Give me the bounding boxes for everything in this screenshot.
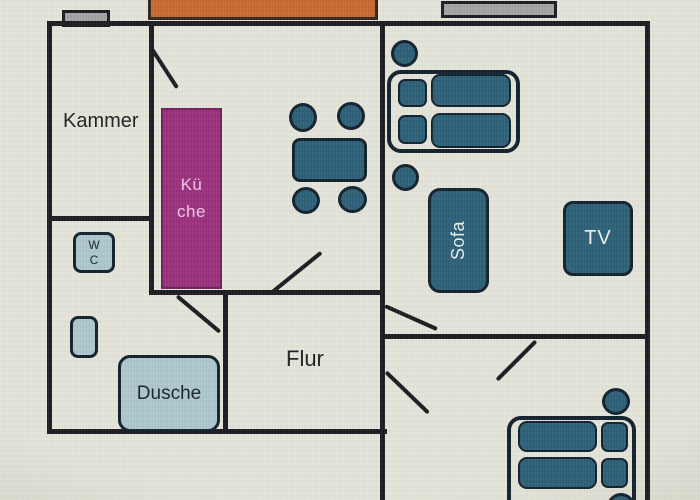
wall-bottom-left <box>47 429 387 434</box>
wall-center-vertical <box>380 21 385 500</box>
dining-table <box>292 138 367 182</box>
bed-pillow <box>398 79 427 107</box>
wall-kitchen-left <box>149 21 154 295</box>
door-swing-bedroom-living <box>496 340 538 382</box>
dining-chair <box>289 103 317 132</box>
dining-chair <box>292 187 320 214</box>
bed-mattress <box>518 457 597 489</box>
bed-bedroom <box>507 416 636 500</box>
floorplan-photo: Kammer Flur Kü che Sofa TV W C Dusche <box>0 0 700 500</box>
door-swing-bathroom <box>176 294 221 333</box>
tv: TV <box>563 201 633 276</box>
sofa-label: Sofa <box>448 221 469 260</box>
nightstand-circle <box>602 388 630 415</box>
shower-label: Dusche <box>137 383 201 405</box>
bed-pillow <box>601 458 628 488</box>
kitchen-counter: Kü che <box>161 108 222 289</box>
wall-living-bedroom-divider <box>380 334 650 339</box>
sofa: Sofa <box>428 188 489 293</box>
wall-bathroom-right <box>223 290 228 434</box>
bed-pillow <box>398 115 427 144</box>
nightstand-circle <box>391 40 418 67</box>
kitchen-label-line1: Kü <box>181 172 203 198</box>
nightstand-circle <box>392 164 419 191</box>
balcony-rect <box>148 0 378 20</box>
bed-mattress <box>518 421 597 452</box>
dining-chair <box>338 186 367 213</box>
door-swing-living-room <box>384 304 438 331</box>
shower: Dusche <box>118 355 220 432</box>
wc-label-line2: C <box>90 253 99 267</box>
tv-label: TV <box>584 227 612 250</box>
bed-mattress <box>431 113 511 148</box>
wc-toilet: W C <box>73 232 115 273</box>
wc-label-line1: W <box>88 238 99 252</box>
wall-kitchen-bottom <box>149 290 385 295</box>
bed-mattress <box>431 74 511 107</box>
wall-right <box>645 21 650 500</box>
bed-living-room <box>387 70 520 153</box>
bed-pillow <box>601 422 628 452</box>
wall-kammer-bottom <box>47 216 154 221</box>
wall-left <box>47 21 52 434</box>
window-living-room <box>441 1 557 18</box>
door-swing-bedroom-flur <box>385 371 430 415</box>
room-label-kammer: Kammer <box>63 110 139 133</box>
wall-top <box>47 21 650 26</box>
kitchen-label-line2: che <box>177 199 206 225</box>
door-swing-kitchen-flur <box>269 251 323 296</box>
room-label-flur: Flur <box>286 346 324 372</box>
dining-chair <box>337 102 365 130</box>
bathroom-sink <box>70 316 98 358</box>
